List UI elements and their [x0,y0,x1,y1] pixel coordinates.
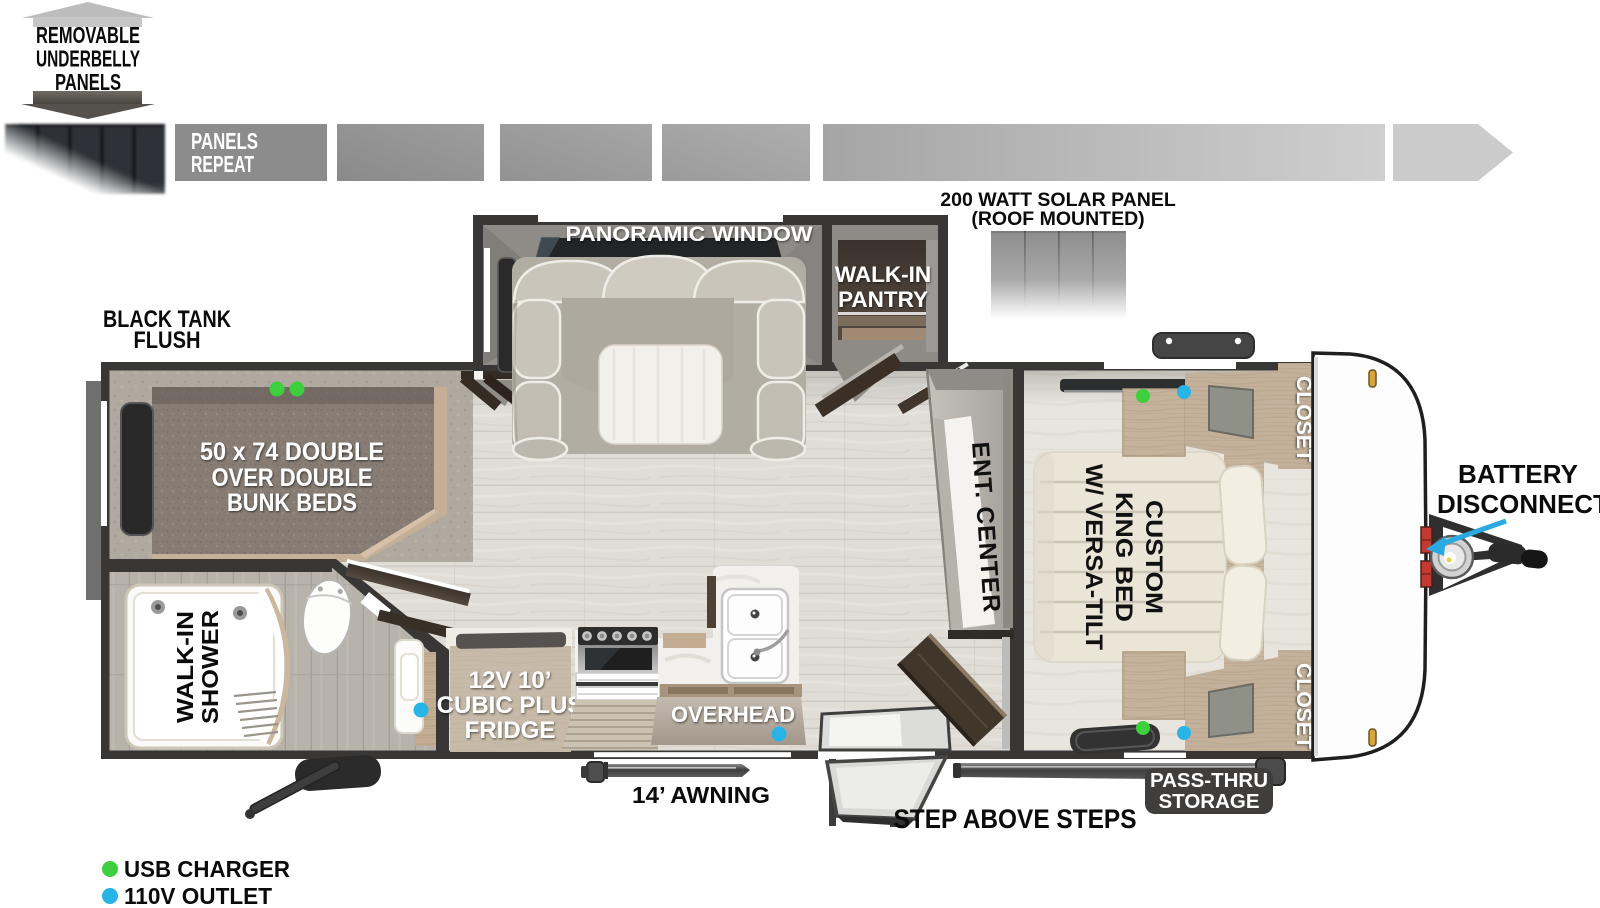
svg-text:110V OUTLET: 110V OUTLET [124,883,272,908]
svg-text:(ROOF MOUNTED): (ROOF MOUNTED) [971,208,1144,230]
svg-text:FLUSH: FLUSH [134,327,201,354]
svg-text:DISCONNECT: DISCONNECT [1437,489,1600,519]
svg-text:OVERHEAD: OVERHEAD [671,702,795,727]
svg-text:CUBIC PLUS: CUBIC PLUS [437,692,584,719]
svg-text:12V 10’: 12V 10’ [469,667,552,694]
svg-text:BATTERY: BATTERY [1458,459,1578,489]
svg-text:PASS-THRU: PASS-THRU [1150,769,1268,792]
svg-text:OVER DOUBLE: OVER DOUBLE [212,464,373,492]
svg-text:PANTRY: PANTRY [838,287,928,312]
svg-text:UNDERBELLY: UNDERBELLY [36,46,140,72]
svg-text:STEP ABOVE STEPS: STEP ABOVE STEPS [894,804,1137,834]
svg-text:USB CHARGER: USB CHARGER [124,856,290,882]
svg-text:BUNK BEDS: BUNK BEDS [227,489,357,517]
svg-text:50 x 74 DOUBLE: 50 x 74 DOUBLE [200,438,384,466]
svg-text:WALK-IN: WALK-IN [835,262,931,287]
svg-text:W/ VERSA-TILT: W/ VERSA-TILT [1080,464,1107,650]
svg-text:REPEAT: REPEAT [191,151,254,177]
svg-text:SHOWER: SHOWER [197,610,223,724]
svg-text:REMOVABLE: REMOVABLE [36,22,140,48]
svg-text:FRIDGE: FRIDGE [465,717,556,744]
svg-text:PANORAMIC WINDOW: PANORAMIC WINDOW [566,222,814,246]
svg-text:WALK-IN: WALK-IN [172,611,198,723]
svg-text:KING BED: KING BED [1110,492,1137,622]
svg-text:CUSTOM: CUSTOM [1140,500,1167,614]
svg-text:14’ AWNING: 14’ AWNING [632,782,770,808]
svg-text:STORAGE: STORAGE [1159,790,1260,813]
